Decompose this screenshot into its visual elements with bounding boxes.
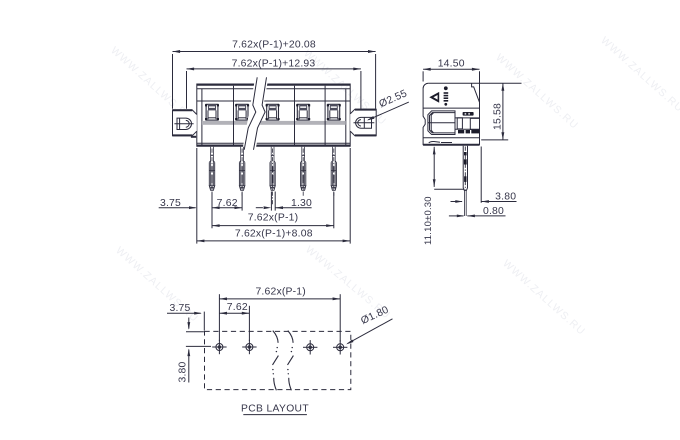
svg-text:7.62x(P-1): 7.62x(P-1)	[255, 287, 306, 298]
svg-text:11.10±0.30: 11.10±0.30	[423, 196, 434, 245]
svg-text:3.80: 3.80	[495, 192, 516, 203]
svg-text:7.62x(P-1): 7.62x(P-1)	[248, 213, 299, 224]
svg-text:7.62x(P-1)+8.08: 7.62x(P-1)+8.08	[235, 229, 313, 240]
svg-text:15.58: 15.58	[492, 103, 503, 130]
svg-text:1.30: 1.30	[291, 198, 312, 209]
svg-text:3.80: 3.80	[177, 361, 188, 382]
svg-text:7.62x(P-1)+20.08: 7.62x(P-1)+20.08	[232, 39, 316, 50]
svg-text:0.80: 0.80	[483, 206, 504, 217]
svg-text:7.62: 7.62	[217, 198, 238, 209]
svg-text:3.75: 3.75	[160, 198, 181, 209]
svg-text:7.62x(P-1)+12.93: 7.62x(P-1)+12.93	[232, 58, 316, 69]
svg-text:PCB LAYOUT: PCB LAYOUT	[241, 403, 309, 414]
svg-text:14.50: 14.50	[438, 59, 465, 70]
svg-text:3.75: 3.75	[169, 303, 190, 314]
svg-text:7.62: 7.62	[227, 302, 248, 313]
